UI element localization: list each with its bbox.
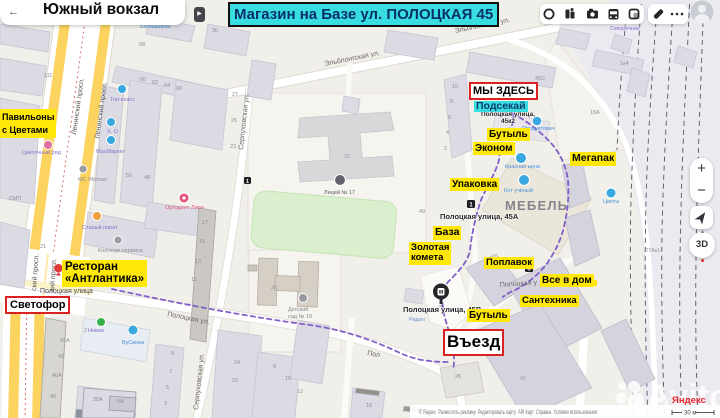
svg-text:Колледж сервиса: Колледж сервиса: [98, 248, 144, 254]
svg-text:50: 50: [126, 173, 132, 179]
svg-text:30: 30: [212, 28, 218, 34]
svg-text:1: 1: [246, 179, 249, 185]
svg-text:27Ак1: 27Ак1: [645, 248, 660, 254]
svg-text:Яндекс: Яндекс: [672, 395, 706, 406]
svg-text:СМП: СМП: [9, 196, 21, 202]
svg-text:60: 60: [140, 77, 146, 83]
svg-text:6: 6: [448, 115, 451, 121]
svg-text:40А: 40А: [52, 373, 62, 379]
svg-text:18А: 18А: [590, 110, 600, 116]
svg-text:66: 66: [176, 86, 182, 92]
svg-text:7: 7: [169, 369, 172, 375]
svg-text:5: 5: [166, 385, 169, 391]
svg-text:42: 42: [58, 354, 64, 360]
svg-text:49: 49: [419, 209, 425, 215]
svg-text:25: 25: [231, 118, 237, 124]
svg-text:Кот учёный: Кот учёный: [504, 187, 533, 194]
svg-text:38А: 38А: [93, 397, 103, 403]
svg-text:8: 8: [450, 99, 453, 105]
svg-text:Новая: Новая: [88, 328, 104, 334]
svg-text:Скворечник: Скворечник: [610, 26, 640, 32]
svg-text:© Яндекс Разместить рекламу: © Яндекс Разместить рекламу Редактироват…: [419, 409, 597, 416]
svg-text:Полоцкая улица: Полоцкая улица: [40, 288, 93, 295]
svg-text:30 м: 30 м: [684, 411, 696, 417]
svg-text:БуСинка: БуСинка: [122, 340, 145, 346]
svg-text:26: 26: [455, 374, 461, 380]
svg-text:68: 68: [139, 42, 145, 48]
svg-text:3: 3: [164, 401, 167, 407]
svg-text:Красная цена: Красная цена: [505, 164, 541, 170]
svg-text:22: 22: [232, 378, 238, 384]
svg-text:26: 26: [271, 285, 277, 291]
svg-text:9: 9: [171, 351, 174, 357]
svg-text:МахМаркет: МахМаркет: [96, 149, 126, 155]
svg-text:12: 12: [297, 389, 303, 395]
svg-text:62: 62: [152, 80, 158, 86]
svg-text:6А: 6А: [117, 399, 124, 405]
svg-text:1к4: 1к4: [620, 61, 629, 67]
svg-text:64: 64: [164, 83, 170, 89]
svg-text:45: 45: [520, 376, 526, 382]
svg-text:15: 15: [199, 239, 205, 245]
svg-text:48: 48: [144, 175, 150, 181]
svg-text:2: 2: [444, 146, 447, 152]
svg-text:8: 8: [273, 364, 276, 370]
svg-text:23: 23: [230, 144, 236, 150]
svg-text:Лицей № 17: Лицей № 17: [324, 189, 355, 196]
svg-text:Цветочный ряд: Цветочный ряд: [22, 149, 62, 156]
svg-text:42А: 42А: [60, 338, 70, 344]
svg-text:Цветы: Цветы: [603, 199, 619, 205]
svg-text:28: 28: [344, 154, 350, 160]
svg-text:Детский: Детский: [288, 306, 308, 313]
svg-text:МС Woman: МС Woman: [78, 177, 107, 183]
svg-text:2: 2: [84, 328, 87, 334]
svg-text:27: 27: [232, 92, 238, 98]
svg-text:16: 16: [366, 403, 372, 409]
svg-text:10: 10: [285, 376, 291, 382]
svg-text:11: 11: [191, 277, 197, 283]
svg-text:21: 21: [40, 244, 46, 250]
svg-text:10: 10: [452, 84, 458, 90]
svg-text:40: 40: [50, 394, 56, 400]
svg-text:Ортодонт Лион: Ортодонт Лион: [165, 205, 204, 211]
svg-text:сад № 19: сад № 19: [288, 314, 312, 320]
svg-text:4: 4: [446, 130, 449, 136]
svg-text:Радон: Радон: [409, 317, 425, 323]
svg-text:Топ-класс: Топ-класс: [110, 97, 135, 103]
svg-text:13: 13: [195, 259, 201, 265]
svg-text:Старый пират: Старый пират: [82, 224, 118, 231]
svg-text:17: 17: [202, 220, 208, 226]
svg-text:24: 24: [234, 360, 240, 366]
svg-text:111: 111: [44, 73, 52, 79]
svg-text:Х. О: Х. О: [107, 129, 119, 135]
